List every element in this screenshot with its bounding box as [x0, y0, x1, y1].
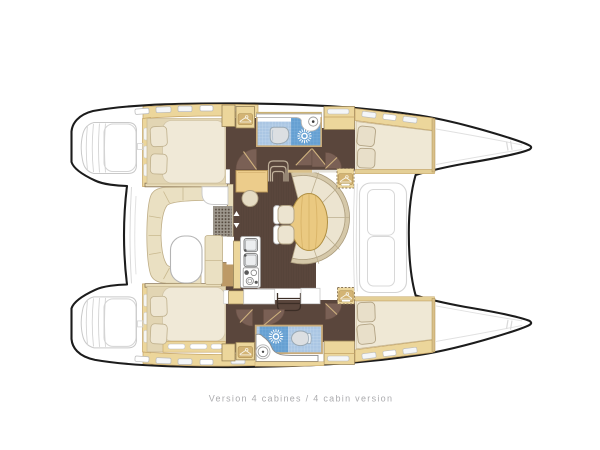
svg-text:Version 4 cabines / 4 cabin ve: Version 4 cabines / 4 cabin version: [209, 394, 394, 404]
